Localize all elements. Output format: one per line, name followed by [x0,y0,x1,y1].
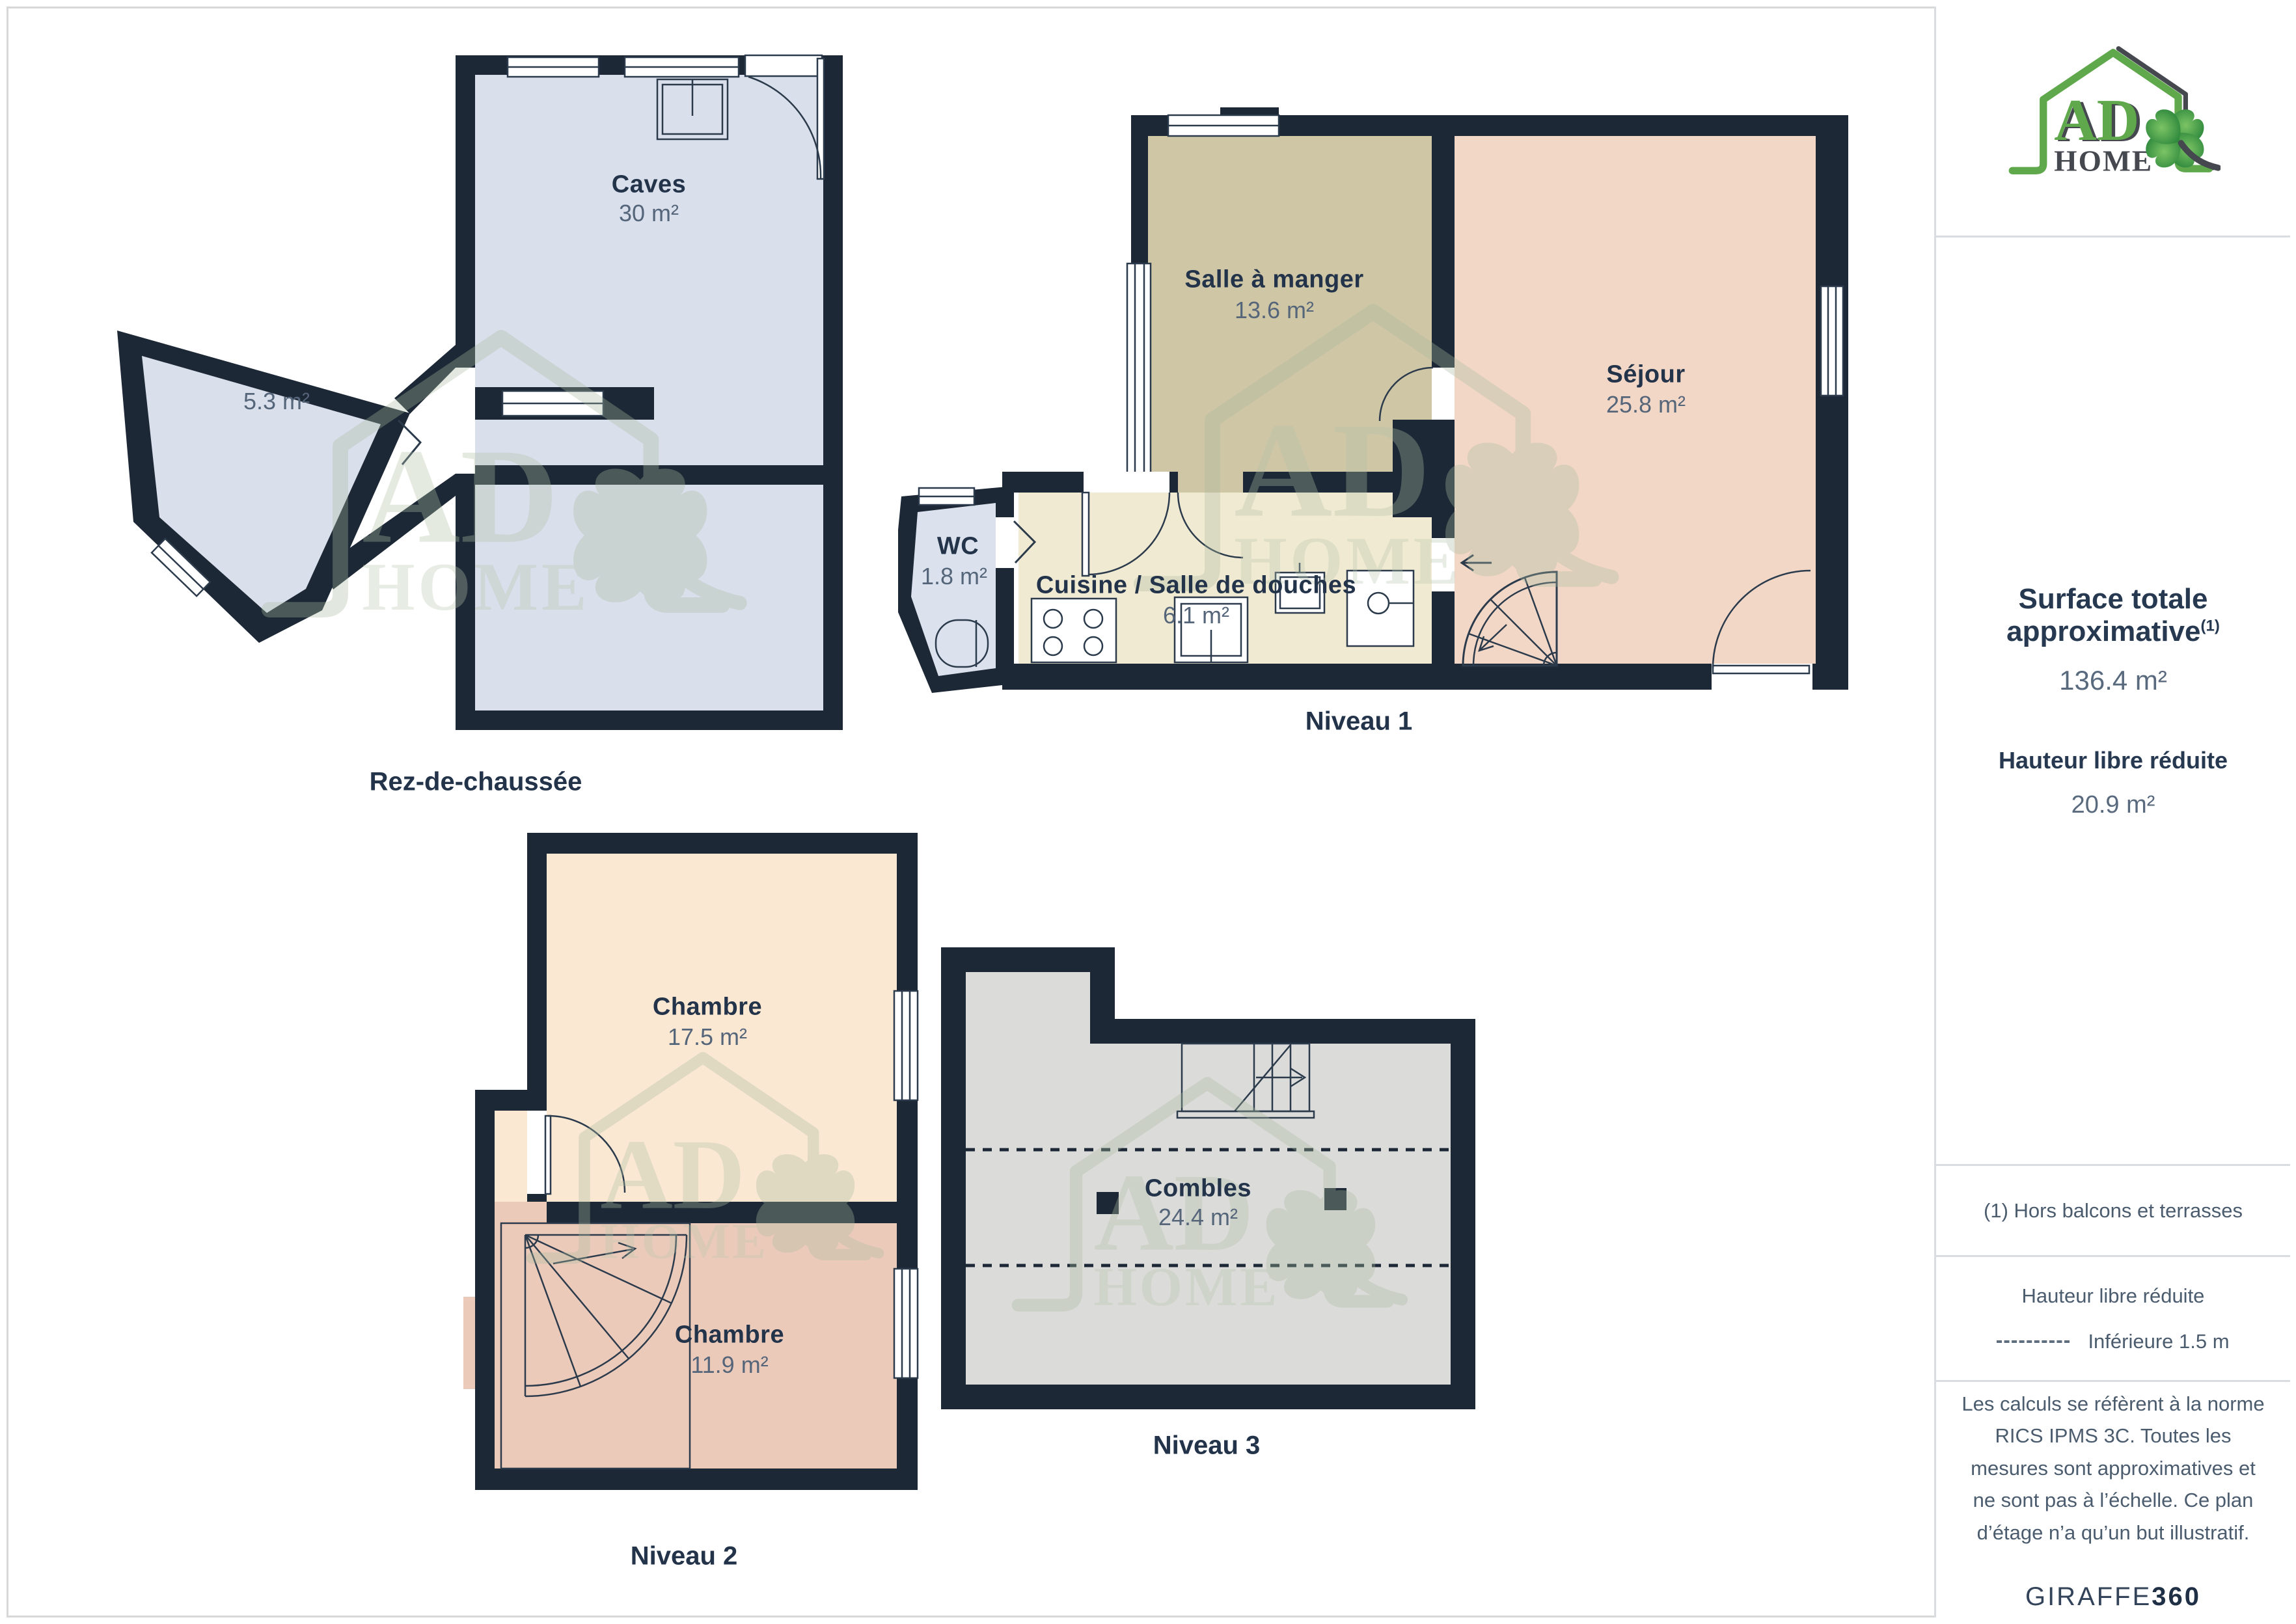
room-area-combles: 24.4 m² [1158,1204,1238,1231]
divider-wall-lower [1432,591,1455,664]
room-area-chambre2: 11.9 m² [690,1351,768,1379]
brand-ad: AD [2054,87,2139,152]
floorplan-page: AD HOME [0,0,2296,1624]
n2-left-wall-upper [527,833,547,1111]
divider-wall-mid [1432,517,1455,538]
surface-total-title: Surface totale approximative(1) [1936,583,2290,648]
n2-inner-wall [547,1202,897,1223]
chambre1-window [894,991,918,1100]
totals-section: Surface totale approximative(1) 136.4 m²… [1936,236,2290,1164]
sejour-entry-opening [1432,538,1455,591]
floor-label-niveau2: Niveau 2 [631,1542,738,1571]
room-area-chambre1: 17.5 m² [668,1023,747,1051]
divider-pillar [1393,420,1455,517]
room-area-salle: 13.6 m² [1235,297,1314,324]
n2-left-wall-lower [475,1090,495,1490]
n2-bottom-wall [475,1468,918,1490]
n2-right-wall [897,833,918,1490]
left-ledge [463,1297,475,1389]
salle-top-window [1168,115,1279,136]
footnote-text: (1) Hors balcons et terrasses [1984,1199,2243,1223]
n2-wall-stub [527,1194,547,1202]
sejour-window [1821,286,1843,396]
floorplan-niveau1 [898,107,1848,699]
room-area-sejour: 25.8 m² [1606,391,1686,418]
dashed-line-swatch [1997,1340,2070,1343]
divider-wall-upper [1432,115,1455,368]
legend-title: Hauteur libre réduite [2022,1284,2205,1308]
floor-label-niveau3: Niveau 3 [1153,1431,1261,1461]
caves-window-1 [508,57,599,77]
salle-left-window [1127,264,1151,478]
room-label-sejour: Séjour [1606,361,1685,389]
combles-post-2 [1324,1188,1346,1210]
brand-home: HOME [2054,144,2153,177]
reduced-height-title: Hauteur libre réduite [1999,747,2228,774]
info-sidebar: AD AD HOME Surface totale approximative(… [1934,7,2290,1617]
legend-section: Hauteur libre réduite Inférieure 1.5 m [1936,1255,2290,1380]
floor-label-rdc: Rez-de-chaussée [370,768,582,797]
cuisine-door1-opening [1084,472,1169,493]
hall-opening [1178,472,1243,493]
footnote-section: (1) Hors balcons et terrasses [1936,1164,2290,1255]
floor-label-niveau1: Niveau 1 [1305,707,1413,737]
floorplan-rdc [104,39,879,813]
salle-sejour-door-opening [1432,368,1455,420]
surface-total-value: 136.4 m² [2059,665,2167,696]
room-label-cuisine: Cuisine / Salle de douches [1036,572,1356,600]
room-label-salle: Salle à manger [1184,266,1363,294]
caves-inner-wall-b [475,465,823,485]
n2-top-wall [527,833,918,854]
room-label-chambre2: Chambre [675,1321,784,1349]
reduced-height-value: 20.9 m² [2071,791,2155,819]
floorplan-niveau2 [462,826,944,1522]
logo-section: AD AD HOME [1936,7,2290,236]
room-area-caves: 30 m² [619,200,679,227]
legend-item-label: Inférieure 1.5 m [2088,1330,2229,1353]
room-label-caves: Caves [612,171,686,199]
footnote-marker: (1) [2201,617,2220,634]
stove-icon [1032,599,1116,662]
room-label-wc: WC [937,533,979,561]
disclaimer-section: Les calculs se réfèrent à la norme RICS … [1936,1380,2290,1617]
caves-window-2 [625,57,739,77]
disclaimer-text: Les calculs se réfèrent à la norme RICS … [1960,1388,2266,1549]
room-area-wc: 1.8 m² [921,563,987,590]
wc-window [919,488,974,505]
giraffe360-brand: GIRAFFE360 [2025,1582,2201,1612]
chambre2-window [894,1269,918,1378]
room-label-chambre1: Chambre [653,994,762,1022]
room-label-combles: Combles [1145,1175,1251,1203]
corridor-opening [456,368,475,474]
shower-icon [1347,571,1414,646]
corridor-wall-upper [394,345,456,414]
combles-post-1 [1097,1192,1119,1214]
room-area-annex: 5.3 m² [243,388,310,415]
wc-door-opening [996,517,1014,568]
room-area-cuisine: 6.1 m² [1163,602,1229,629]
adhome-logo: AD AD HOME [2006,39,2221,204]
